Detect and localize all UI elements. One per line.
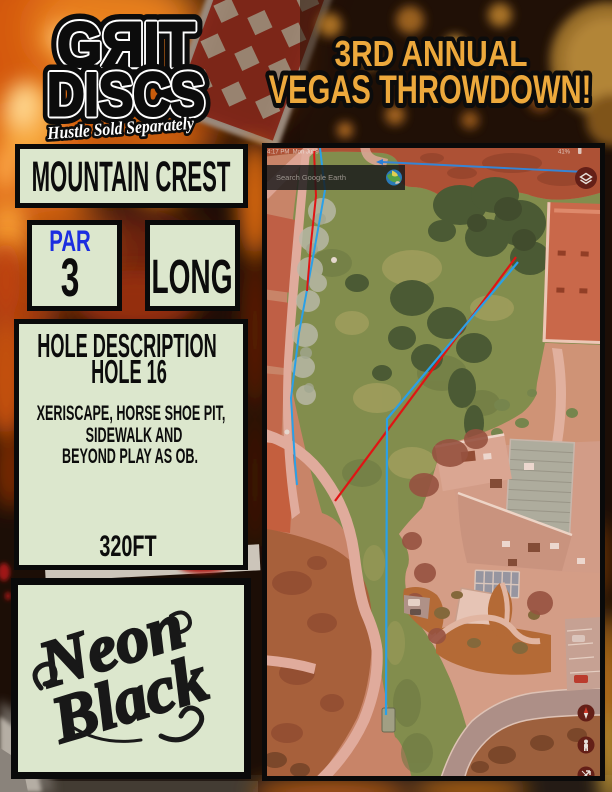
svg-text:BEYOND PLAY AS OB.: BEYOND PLAY AS OB. (62, 444, 198, 468)
svg-text:VEGAS THROWDOWN!: VEGAS THROWDOWN! (269, 68, 592, 113)
svg-text:320FT: 320FT (99, 530, 157, 563)
svg-text:LONG: LONG (151, 250, 232, 304)
svg-text:Search Google Earth: Search Google Earth (276, 173, 346, 182)
svg-text:XERISCAPE, HORSE SHOE PIT,: XERISCAPE, HORSE SHOE PIT, (37, 401, 226, 425)
svg-text:4:17 PM Mon Jul 9: 4:17 PM Mon Jul 9 (267, 150, 319, 156)
svg-text:41%: 41% (558, 150, 571, 156)
svg-text:HOLE 16: HOLE 16 (91, 353, 167, 390)
svg-text:3: 3 (61, 247, 80, 308)
svg-text:MOUNTAIN CREST: MOUNTAIN CREST (32, 153, 231, 201)
